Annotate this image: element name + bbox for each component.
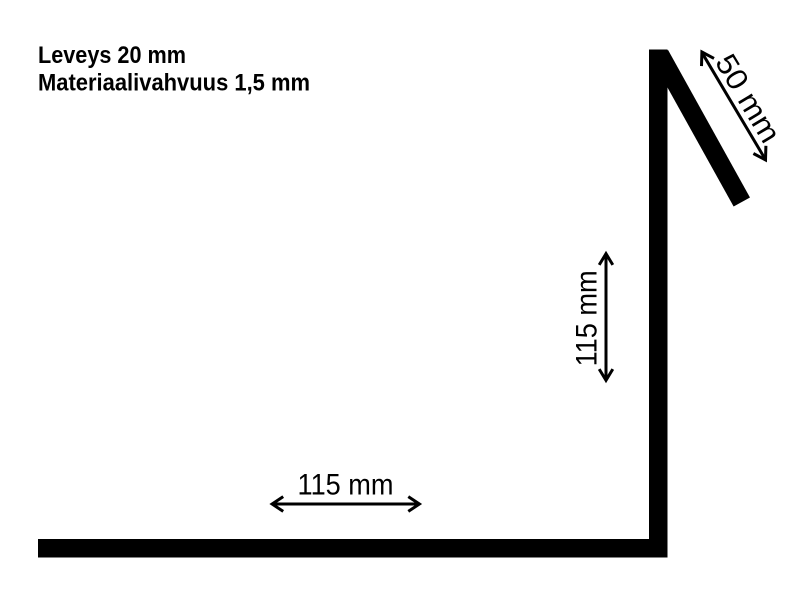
svg-text:Materiaalivahvuus 1,5 mm: Materiaalivahvuus 1,5 mm — [38, 70, 310, 97]
svg-text:115 mm: 115 mm — [298, 468, 394, 501]
svg-text:Leveys 20 mm: Leveys 20 mm — [38, 42, 186, 69]
svg-text:115 mm: 115 mm — [571, 270, 604, 366]
